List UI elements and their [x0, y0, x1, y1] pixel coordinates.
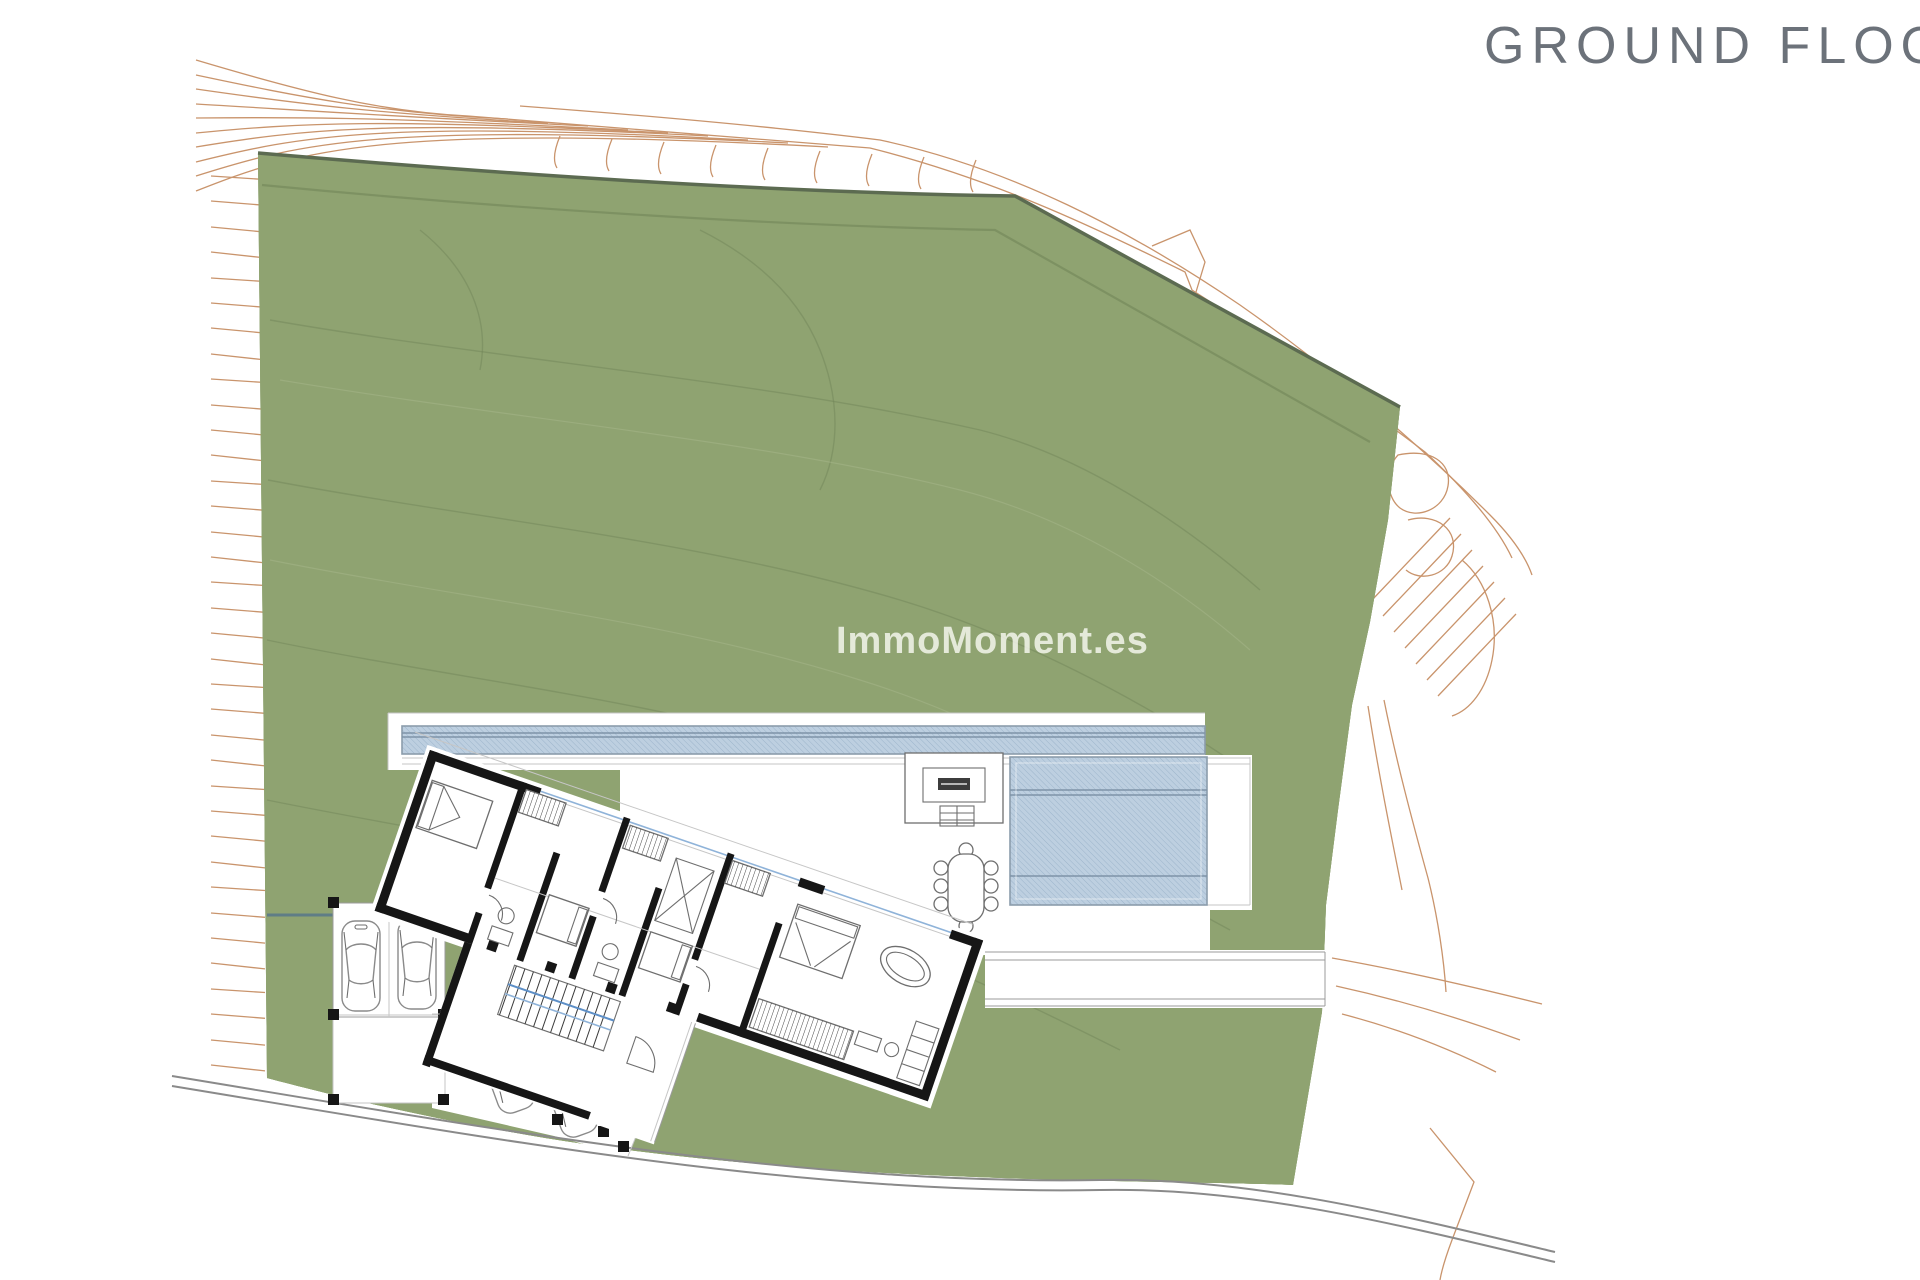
contour-loop	[1452, 560, 1494, 716]
watermark-text: ImmoMoment.es	[836, 620, 1149, 663]
contour-vee-bottomright	[1430, 1128, 1474, 1280]
contour-line-bottomright	[1332, 958, 1542, 1004]
lap-pool	[402, 726, 1205, 754]
outdoor-kitchen	[905, 753, 1003, 826]
chair	[934, 879, 948, 893]
contour-loop	[1388, 453, 1448, 513]
ground-floor-plan-page: { "header": { "title": "GROUND FLOO" }, …	[0, 0, 1920, 1280]
swimming-pool	[1010, 757, 1207, 905]
contour-line-bottomright	[1342, 1014, 1496, 1072]
contour-descender	[1368, 706, 1402, 890]
contour-ticks-left	[211, 176, 265, 1071]
pool-hatch	[1010, 757, 1207, 905]
lap-pool-hatch	[402, 726, 1205, 754]
chair	[934, 897, 948, 911]
chair	[934, 861, 948, 875]
table-top	[948, 854, 984, 922]
walkway-band	[985, 950, 1325, 1008]
contour-bundle-right	[1372, 518, 1516, 696]
page-title: GROUND FLOO	[1484, 16, 1920, 76]
parked-car	[342, 921, 380, 1011]
chair	[984, 897, 998, 911]
contour-line-bottomright	[1336, 986, 1520, 1040]
chair	[984, 861, 998, 875]
chair	[984, 879, 998, 893]
